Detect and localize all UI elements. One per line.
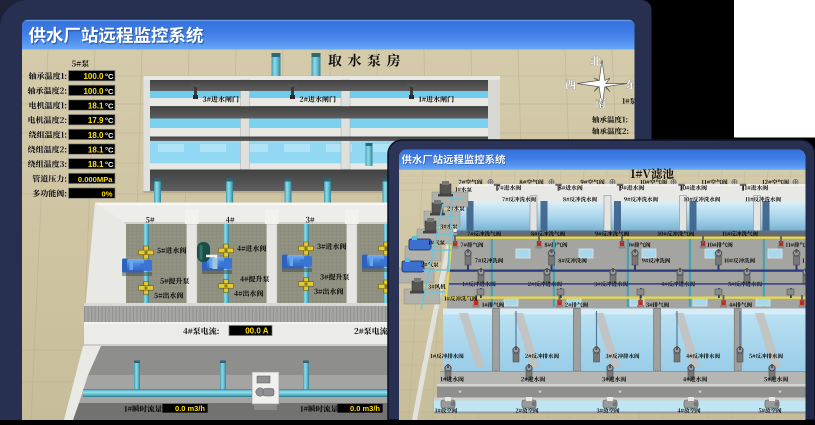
svg-text:17.9: 17.9 [88, 116, 104, 125]
svg-text:00.0 A: 00.0 A [245, 327, 268, 336]
svg-text:°C: °C [105, 72, 114, 81]
svg-text:°C: °C [105, 101, 114, 110]
svg-text:0.000MPa: 0.000MPa [78, 175, 113, 184]
svg-text:100.0: 100.0 [83, 87, 104, 96]
svg-text:°C: °C [105, 87, 114, 96]
svg-text:°C: °C [105, 116, 114, 125]
svg-text:°C: °C [105, 131, 114, 140]
svg-text:0.0 m3/h: 0.0 m3/h [350, 404, 380, 413]
svg-text:18.1: 18.1 [88, 101, 104, 110]
svg-text:0.0 m3/h: 0.0 m3/h [175, 404, 205, 413]
svg-text:18.0: 18.0 [88, 131, 104, 140]
svg-text:°C: °C [105, 160, 114, 169]
svg-text:18.1: 18.1 [88, 145, 104, 154]
svg-text:°C: °C [105, 145, 114, 154]
svg-text:0%: 0% [102, 190, 113, 199]
svg-text:18.1: 18.1 [88, 160, 104, 169]
svg-text:100.0: 100.0 [83, 72, 104, 81]
